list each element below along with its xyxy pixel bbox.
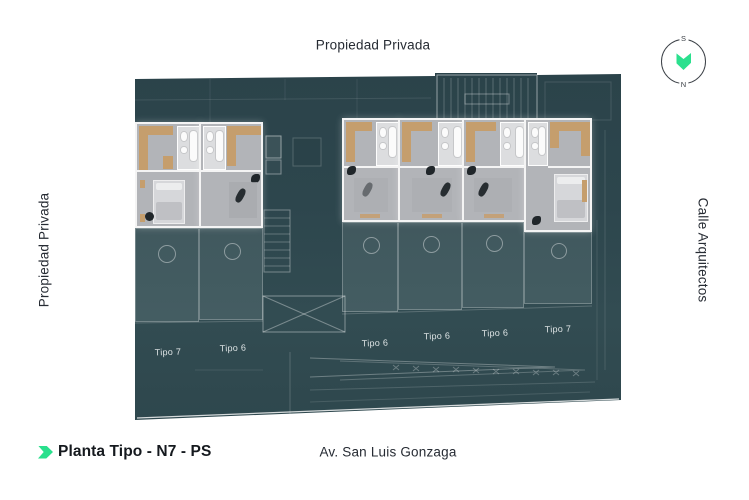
interior-wall — [137, 170, 199, 172]
table-shape — [158, 245, 176, 263]
kitchen-counter — [402, 122, 411, 162]
dimmed-room — [462, 222, 524, 308]
balcony-planter — [484, 214, 504, 218]
kitchen-counter — [139, 126, 173, 135]
sink-shape — [380, 143, 386, 149]
bathtub-shape — [454, 127, 461, 157]
compass: S N — [661, 39, 706, 84]
unit-label: Tipo 6 — [472, 327, 518, 339]
compass-south-label: S — [679, 35, 688, 43]
toilet-shape — [181, 132, 187, 141]
kitchen-counter — [346, 122, 355, 162]
bathtub-shape — [516, 127, 523, 157]
bathroom — [500, 122, 526, 166]
bed-shape — [153, 180, 185, 224]
unit-tipo6-left — [199, 122, 263, 228]
balcony-planter — [422, 214, 442, 218]
sink-shape — [532, 143, 538, 149]
table-shape — [551, 243, 567, 259]
toilet-shape — [504, 128, 510, 137]
unit-label: Tipo 6 — [352, 337, 398, 349]
unit-label: Tipo 7 — [535, 323, 581, 335]
unit-label: Tipo 6 — [414, 330, 460, 342]
street-label-right: Calle Arquitectos — [696, 198, 711, 303]
bathroom — [376, 122, 399, 166]
toilet-shape — [532, 128, 538, 137]
blanket-shape — [557, 200, 585, 218]
toilet-shape — [380, 128, 386, 137]
dimmed-room — [135, 228, 199, 322]
bathroom — [177, 126, 200, 170]
page: Propiedad Privada Propiedad Privada Call… — [0, 0, 749, 500]
plan-title-text: Planta Tipo - N7 - PS — [58, 443, 211, 461]
interior-wall — [548, 166, 590, 168]
interior-wall — [201, 170, 261, 172]
plan-title: Planta Tipo - N7 - PS — [38, 443, 211, 461]
unit-tipo7-right — [524, 118, 592, 232]
unit-tipo6-c — [462, 118, 526, 222]
dimmed-room — [398, 222, 462, 310]
sink-shape — [442, 143, 448, 149]
table-shape — [486, 235, 503, 252]
unit-label: Tipo 6 — [210, 342, 256, 354]
bathroom — [528, 122, 548, 166]
table-shape — [423, 236, 440, 253]
bathroom — [203, 126, 226, 170]
table-shape — [224, 243, 241, 260]
bathroom — [438, 122, 464, 166]
double-chevron-right-icon — [38, 446, 53, 459]
kitchen-counter — [550, 122, 559, 148]
dimmed-room — [524, 232, 592, 304]
bathtub-shape — [389, 127, 396, 157]
kitchen-counter — [227, 126, 236, 166]
unit-tipo6-b — [398, 118, 464, 222]
bathtub-shape — [216, 131, 223, 161]
balcony-planter — [360, 214, 380, 218]
nightstand — [582, 180, 587, 202]
unit-tipo6-a — [342, 118, 400, 222]
unit-label: Tipo 7 — [145, 346, 191, 358]
plant-shape — [347, 166, 356, 175]
street-label-top: Propiedad Privada — [316, 38, 430, 53]
bathtub-shape — [190, 131, 197, 161]
north-arrow-icon — [676, 53, 691, 70]
nightstand — [140, 180, 145, 188]
bathtub-shape — [539, 127, 545, 155]
blanket-shape — [156, 202, 182, 220]
pillow-shape — [557, 177, 585, 184]
plant-shape — [467, 166, 476, 175]
toilet-shape — [207, 132, 213, 141]
pillow-shape — [156, 183, 182, 190]
dimmed-room — [199, 228, 263, 320]
compass-north-label: N — [679, 81, 688, 89]
street-label-bottom: Av. San Luis Gonzaga — [319, 445, 456, 460]
unit-tipo7-left — [135, 122, 201, 228]
floor-plan: Tipo 7 Tipo 6 Tipo 6 Tipo 6 Tipo 6 Tipo … — [135, 70, 621, 422]
dimmed-room — [342, 222, 398, 312]
plant-shape — [426, 166, 435, 175]
plant-shape — [532, 216, 541, 225]
table-shape — [363, 237, 380, 254]
sink-shape — [207, 147, 213, 153]
sink-shape — [504, 143, 510, 149]
sink-shape — [181, 147, 187, 153]
rug-shape — [354, 178, 388, 212]
kitchen-counter — [581, 122, 590, 156]
kitchen-counter — [466, 122, 475, 162]
street-label-left: Propiedad Privada — [37, 193, 52, 307]
toilet-shape — [442, 128, 448, 137]
kitchen-counter — [163, 156, 173, 169]
ottoman-shape — [145, 212, 154, 221]
